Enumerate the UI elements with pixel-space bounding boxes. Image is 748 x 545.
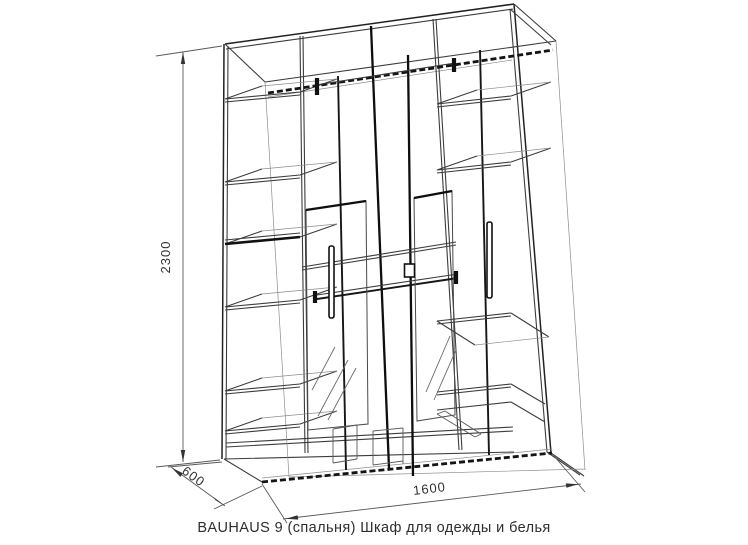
left-section-shelves: [225, 79, 337, 434]
door-meeting-edges: [371, 26, 413, 476]
arrow-down-icon: [181, 450, 185, 462]
dimension-height-label: 2300: [158, 241, 173, 274]
rod-brackets: [315, 58, 456, 303]
carcass-outline: [222, 4, 585, 482]
dimensions: 2300 600 1600: [156, 46, 585, 523]
mirror-left: [306, 201, 368, 430]
dimension-width-label: 1600: [412, 479, 446, 498]
dimension-depth: 600: [168, 462, 262, 509]
arrow-left-icon: [286, 515, 298, 519]
arrow-right-icon: [566, 483, 578, 487]
hanging-rod: [317, 278, 458, 299]
wardrobe-technical-drawing-page: 2300 600 1600 BAUHAUS 9 (спальня) Шкаф д…: [0, 0, 748, 545]
dimension-depth-label: 600: [179, 463, 208, 490]
door-handle-left: [329, 246, 334, 318]
wardrobe-wireframe-canvas: 2300 600 1600: [0, 0, 748, 545]
center-lock-knob: [405, 264, 415, 277]
arrow-up-icon: [181, 52, 185, 64]
dimension-height: 2300: [156, 46, 222, 467]
door-handle-right: [487, 222, 492, 298]
drawing-caption: BAUHAUS 9 (спальня) Шкаф для одежды и бе…: [0, 520, 748, 536]
